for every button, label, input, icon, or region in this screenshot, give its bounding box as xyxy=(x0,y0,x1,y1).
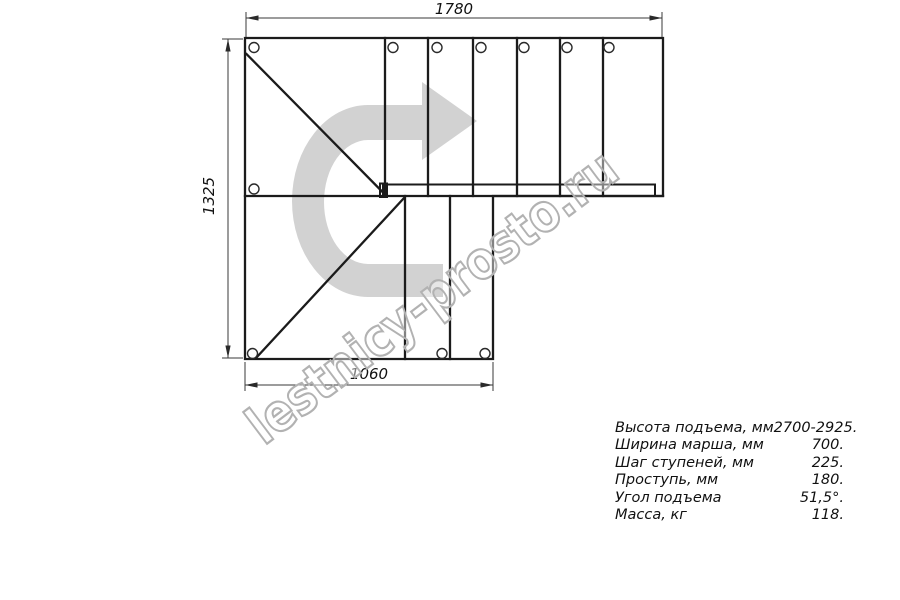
spec-label: Высота подъема, мм xyxy=(615,420,774,437)
spec-row-angle: Угол подъема 51,5°. xyxy=(615,490,844,507)
spec-label: Угол подъема xyxy=(615,490,722,507)
spec-value: 700. xyxy=(812,437,844,454)
spec-row-mass: Масса, кг 118. xyxy=(615,507,844,524)
stair-drawing-page: 1780 1325 1060 lestnicy-prosto.ru Высота… xyxy=(0,0,900,600)
spec-value: 180. xyxy=(812,472,844,489)
dimension-top-value: 1780 xyxy=(435,0,473,18)
spec-label: Проступь, мм xyxy=(615,472,718,489)
spec-value: 118. xyxy=(812,507,844,524)
spec-value: 51,5°. xyxy=(800,490,844,507)
spec-row-tread: Проступь, мм 180. xyxy=(615,472,844,489)
spec-row-height: Высота подъема, мм 2700-2925. xyxy=(615,420,844,437)
spec-label: Шаг ступеней, мм xyxy=(615,455,754,472)
spec-row-step-pitch: Шаг ступеней, мм 225. xyxy=(615,455,844,472)
spec-table: Высота подъема, мм 2700-2925. Ширина мар… xyxy=(615,420,844,524)
dimension-top: 1780 xyxy=(246,0,662,37)
spec-row-flight-width: Ширина марша, мм 700. xyxy=(615,437,844,454)
spec-value: 225. xyxy=(812,455,844,472)
spec-label: Ширина марша, мм xyxy=(615,437,764,454)
dimension-left: 1325 xyxy=(200,39,243,358)
dimension-left-value: 1325 xyxy=(200,177,218,215)
spec-label: Масса, кг xyxy=(615,507,687,524)
spec-value: 2700-2925. xyxy=(774,420,858,437)
